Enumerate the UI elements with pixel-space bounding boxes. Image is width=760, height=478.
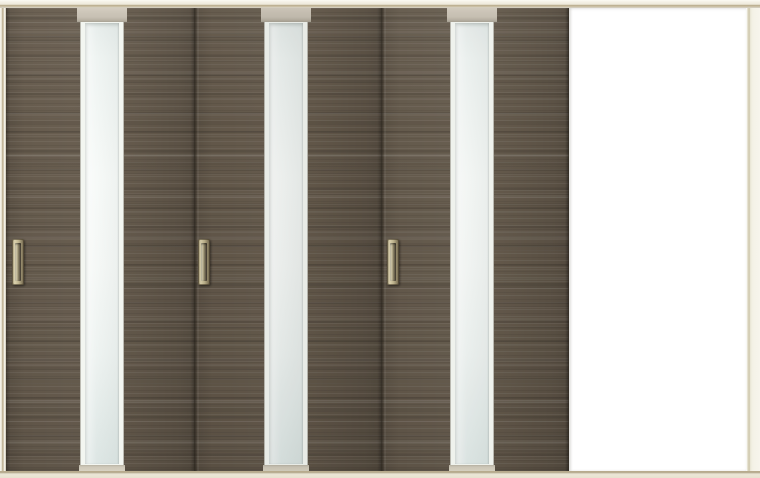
glass-top-cap — [447, 8, 497, 22]
panel-edge-shadow — [565, 8, 569, 471]
door-panel-2[interactable] — [194, 8, 381, 471]
door-handle[interactable] — [198, 239, 210, 285]
frame-left-jamb — [0, 8, 6, 471]
glass-slit — [450, 8, 494, 471]
glass-slit — [80, 8, 124, 471]
frame-top-rail — [0, 0, 760, 8]
glass-top-cap — [77, 8, 127, 22]
doorway-opening — [569, 8, 746, 471]
handle-recess — [201, 243, 207, 281]
panel-edge-shadow — [381, 8, 386, 471]
door-panel-1[interactable] — [6, 8, 194, 471]
glass-stile-frame — [264, 22, 308, 465]
door-panel-3[interactable] — [381, 8, 569, 471]
frosted-glass-pane — [455, 23, 489, 464]
sliding-door-unit-photo — [0, 0, 760, 478]
frame-right-jamb — [746, 8, 760, 471]
panel-edge-shadow — [6, 8, 11, 471]
glass-stile-frame — [80, 22, 124, 465]
handle-recess — [15, 243, 21, 281]
handle-recess — [390, 243, 396, 281]
glass-stile-frame — [450, 22, 494, 465]
door-handle[interactable] — [12, 239, 24, 285]
door-handle[interactable] — [387, 239, 399, 285]
glass-top-cap — [261, 8, 311, 22]
glass-slit — [264, 8, 308, 471]
frame-bottom-rail — [0, 471, 760, 478]
frosted-glass-pane — [85, 23, 119, 464]
frosted-glass-pane — [269, 23, 303, 464]
